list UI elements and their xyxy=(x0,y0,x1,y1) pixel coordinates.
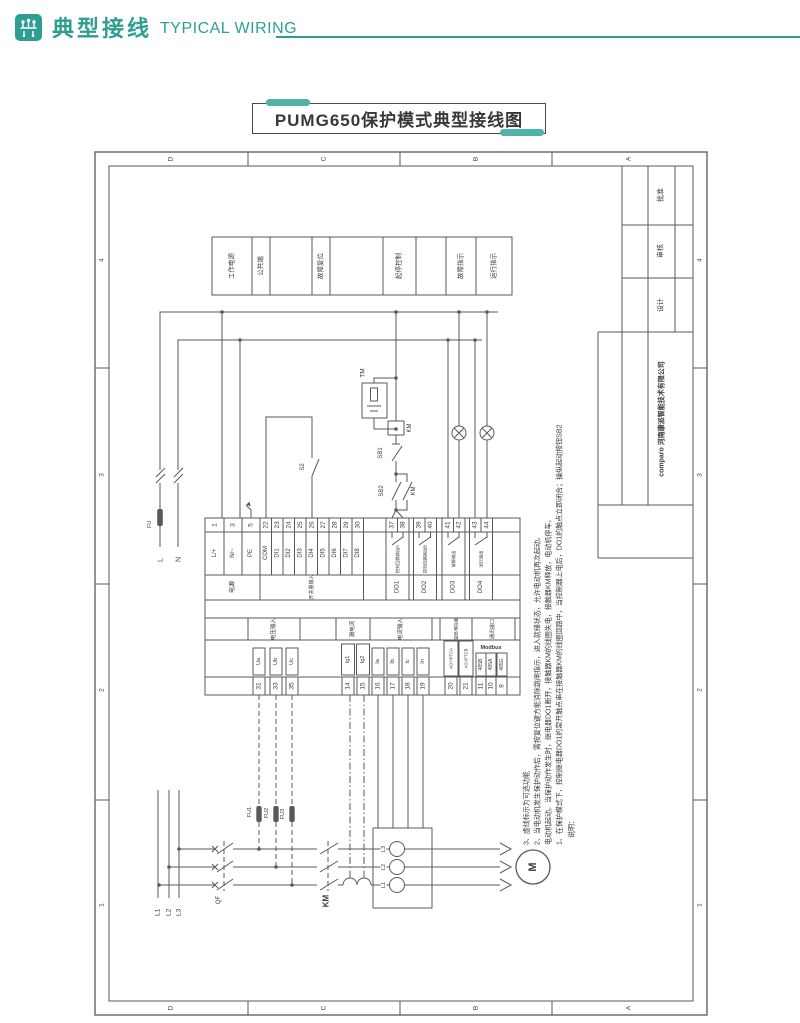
svg-text:L2: L2 xyxy=(166,908,173,916)
tm-label: TM xyxy=(360,368,367,377)
svg-text:41: 41 xyxy=(445,521,452,529)
svg-text:11: 11 xyxy=(478,682,485,689)
svg-text:DO2: DO2 xyxy=(422,580,428,593)
svg-text:24: 24 xyxy=(286,521,293,529)
motor-label: M xyxy=(527,862,539,871)
svg-text:DO3: DO3 xyxy=(451,580,457,593)
note-line-1: 1、在保护模式下，控制继电器DO1的常开触点串在接触器KM的线圈回路中，当控制器… xyxy=(555,424,564,845)
svg-text:FU2: FU2 xyxy=(264,808,270,818)
svg-text:故障输出: 故障输出 xyxy=(450,551,457,568)
svg-text:38: 38 xyxy=(400,521,407,529)
svg-text:Ic: Ic xyxy=(405,659,411,664)
wiring-diagram: D C B A D C B A 4 3 2 1 4 3 2 1 xyxy=(0,0,800,1023)
svg-text:Ig2: Ig2 xyxy=(360,656,366,664)
svg-text:37: 37 xyxy=(389,521,396,529)
device-terminal-strip: 1 3 5 L/+ N/~ PE 22 23 24 25 26 27 28 29… xyxy=(205,518,520,695)
legend-strip: 工作电源 公共端 故障复位 起停控制 故障指示 运行指示 xyxy=(212,237,512,295)
svg-text:4: 4 xyxy=(99,258,106,262)
svg-text:Ia: Ia xyxy=(375,658,381,664)
svg-text:公共端: 公共端 xyxy=(256,256,265,276)
fuse-label: FU xyxy=(147,521,153,528)
km-aux-label: KM xyxy=(411,486,417,495)
svg-text:27: 27 xyxy=(320,521,327,529)
company-name: comparo 河南康派智能技术有限公司 xyxy=(657,361,666,477)
svg-text:L1: L1 xyxy=(381,882,387,888)
svg-text:COM: COM xyxy=(263,546,269,560)
svg-text:485G: 485G xyxy=(499,658,505,670)
svg-text:DI8: DI8 xyxy=(355,548,361,558)
svg-text:温度/模拟量: 温度/模拟量 xyxy=(453,618,460,640)
svg-text:L3: L3 xyxy=(381,846,387,852)
svg-text:30: 30 xyxy=(355,521,362,529)
svg-text:B: B xyxy=(473,157,480,161)
svg-text:26: 26 xyxy=(309,521,316,529)
svg-text:电流输入: 电流输入 xyxy=(396,618,404,641)
field-design: 设计 xyxy=(656,298,665,312)
svg-text:Ib: Ib xyxy=(390,659,396,664)
svg-text:16: 16 xyxy=(375,682,382,690)
svg-text:4: 4 xyxy=(697,258,704,262)
svg-text:33: 33 xyxy=(273,682,280,690)
svg-text:3: 3 xyxy=(99,473,106,477)
svg-text:2: 2 xyxy=(99,688,106,692)
svg-text:3: 3 xyxy=(697,473,704,477)
svg-text:44: 44 xyxy=(484,521,491,529)
motor-circuit: L1 L2 L3 QF KM L3 L2 L1 M xyxy=(155,790,551,916)
svg-text:控制回路输出A: 控制回路输出A xyxy=(394,545,401,573)
svg-text:9: 9 xyxy=(499,684,506,688)
notes: 说明： 1、在保护模式下，控制继电器DO1的常开触点串在接触器KM的线圈回路中，… xyxy=(522,424,576,845)
field-approve: 批准 xyxy=(656,188,665,202)
svg-text:漏电流: 漏电流 xyxy=(348,620,356,637)
svg-text:Ub: Ub xyxy=(273,658,279,665)
svg-text:Ua: Ua xyxy=(256,657,262,665)
note-line-2: 电动机起动。当保护动作发生时，继电器DO1断开，接触器KM的线圈失电，接触器KM… xyxy=(544,516,553,845)
svg-text:DO1: DO1 xyxy=(395,580,401,593)
svg-text:FU3: FU3 xyxy=(280,809,286,819)
svg-text:1: 1 xyxy=(99,903,106,907)
svg-text:DI6: DI6 xyxy=(332,548,338,558)
svg-text:39: 39 xyxy=(416,521,423,529)
svg-text:L1: L1 xyxy=(155,908,162,916)
svg-text:DI7: DI7 xyxy=(344,548,350,558)
zone-numbers-left: 4 3 2 1 xyxy=(99,258,106,907)
svg-text:DI2: DI2 xyxy=(286,548,292,558)
svg-text:A: A xyxy=(626,1005,633,1010)
svg-text:起停控制: 起停控制 xyxy=(394,253,403,280)
svg-text:AO+/PTCA: AO+/PTCA xyxy=(449,648,454,669)
svg-text:10: 10 xyxy=(488,682,495,690)
svg-text:FU1: FU1 xyxy=(247,807,253,817)
svg-text:控制回路输出B: 控制回路输出B xyxy=(421,545,428,573)
svg-text:19: 19 xyxy=(420,682,427,690)
modbus-label: Modbus xyxy=(480,645,501,651)
svg-text:L2: L2 xyxy=(381,864,387,870)
svg-text:22: 22 xyxy=(263,521,270,529)
svg-text:工作电源: 工作电源 xyxy=(227,253,236,280)
svg-text:DO4: DO4 xyxy=(478,580,484,593)
notes-title: 说明： xyxy=(567,817,576,838)
note-line-3: 2、当电动机发生保护动作后，需按复位键方能消除跳闸指示，进入就绪状态，允许电动机… xyxy=(533,533,542,845)
svg-text:A: A xyxy=(626,156,633,161)
svg-text:运行输出: 运行输出 xyxy=(478,551,485,568)
svg-text:Uc: Uc xyxy=(289,658,295,665)
svg-text:B: B xyxy=(473,1006,480,1010)
svg-text:25: 25 xyxy=(297,521,304,529)
svg-text:故障指示: 故障指示 xyxy=(456,253,465,280)
svg-text:21: 21 xyxy=(463,682,470,690)
svg-text:485B: 485B xyxy=(478,658,484,670)
svg-text:DI4: DI4 xyxy=(309,548,315,558)
svg-text:PE: PE xyxy=(248,549,254,557)
svg-text:1: 1 xyxy=(212,523,219,527)
supply-n-label: N xyxy=(176,557,183,562)
svg-text:43: 43 xyxy=(472,521,479,529)
svg-text:通讯接口: 通讯接口 xyxy=(489,619,496,639)
svg-text:电压输入: 电压输入 xyxy=(269,618,277,641)
svg-text:Ig1: Ig1 xyxy=(345,656,351,664)
svg-text:故障复位: 故障复位 xyxy=(316,253,325,280)
svg-text:L3: L3 xyxy=(176,908,183,916)
svg-text:28: 28 xyxy=(332,521,339,529)
svg-text:2: 2 xyxy=(697,688,704,692)
field-review: 审核 xyxy=(656,244,665,258)
svg-text:N/~: N/~ xyxy=(230,548,236,558)
svg-text:18: 18 xyxy=(405,682,412,690)
svg-text:C: C xyxy=(321,1005,328,1010)
note-line-4: 3、虚线标示为可选功能 xyxy=(522,771,531,845)
svg-text:D: D xyxy=(168,1005,175,1010)
svg-text:DI5: DI5 xyxy=(321,548,327,558)
svg-text:29: 29 xyxy=(343,521,350,529)
svg-text:20: 20 xyxy=(448,682,455,690)
zone-numbers-right: 4 3 2 1 xyxy=(697,258,704,907)
svg-text:1: 1 xyxy=(697,903,704,907)
svg-text:DI1: DI1 xyxy=(275,548,281,558)
sb2-label: SB2 xyxy=(379,485,385,497)
svg-text:In: In xyxy=(420,659,426,664)
s2-label: S2 xyxy=(300,463,306,471)
svg-text:23: 23 xyxy=(274,521,281,529)
document-page: 典型接线 TYPICAL WIRING PUMG650保护模式典型接线图 D C… xyxy=(0,0,800,1023)
svg-text:17: 17 xyxy=(390,682,397,690)
svg-text:35: 35 xyxy=(289,682,296,690)
svg-text:电源: 电源 xyxy=(228,581,236,593)
svg-text:14: 14 xyxy=(345,682,352,690)
title-block: 批准 审核 设计 comparo 河南康派智能技术有限公司 xyxy=(598,166,693,558)
svg-text:QF: QF xyxy=(216,896,222,905)
svg-text:3: 3 xyxy=(230,523,237,527)
supply-l-label: L xyxy=(158,558,165,562)
svg-text:5: 5 xyxy=(248,523,255,527)
svg-text:开关量输入: 开关量输入 xyxy=(308,574,315,599)
svg-text:KM: KM xyxy=(322,894,331,907)
svg-text:31: 31 xyxy=(256,682,263,690)
km-coil-label: KM xyxy=(407,423,413,432)
svg-text:42: 42 xyxy=(456,521,463,529)
svg-text:AO-/PTCB: AO-/PTCB xyxy=(464,648,469,668)
svg-text:40: 40 xyxy=(427,521,434,529)
svg-text:L/+: L/+ xyxy=(212,548,218,557)
svg-text:运行指示: 运行指示 xyxy=(489,253,498,280)
sb1-label: SB1 xyxy=(378,447,384,459)
svg-text:D: D xyxy=(168,156,175,161)
svg-text:15: 15 xyxy=(360,682,367,690)
svg-text:C: C xyxy=(321,156,328,161)
svg-text:DI3: DI3 xyxy=(298,548,304,558)
svg-text:485A: 485A xyxy=(488,658,494,670)
